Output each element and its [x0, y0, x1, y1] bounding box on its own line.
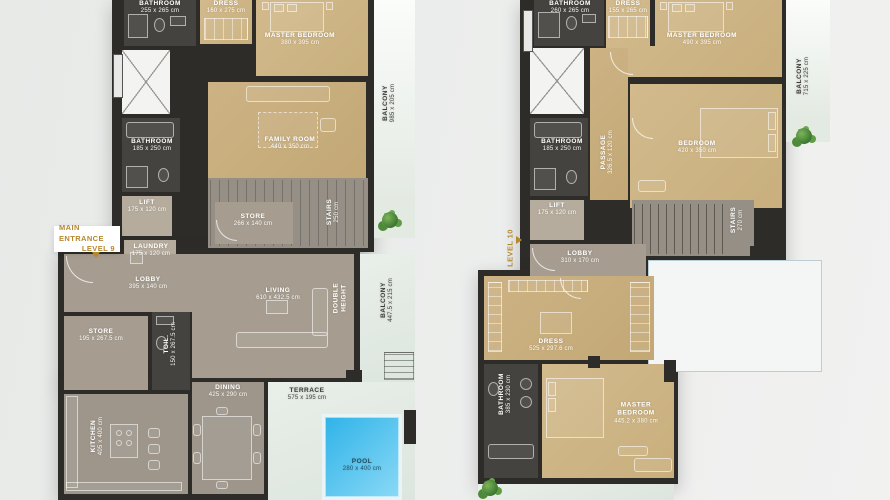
nightstand: [726, 2, 733, 10]
wardrobe: [608, 16, 648, 38]
room-living-l9: [192, 254, 354, 378]
chair: [193, 424, 201, 436]
label-lobby-l10: LOBBY310 x 170 cm: [561, 250, 599, 266]
label-dress-l9: DRESS160 x 275 cm: [207, 0, 245, 16]
pillow: [548, 398, 556, 412]
label-living-l9: LIVING610 x 432.5 cm: [256, 287, 300, 303]
label-lift-l9: LIFT175 x 120 cm: [128, 199, 166, 215]
bench: [618, 446, 648, 456]
sink: [520, 378, 532, 390]
chair: [253, 424, 261, 436]
lift-shaft-l10: [530, 48, 584, 114]
stove-burner: [126, 440, 132, 446]
pillow: [548, 382, 556, 396]
pillow: [287, 4, 297, 12]
pillow: [768, 134, 776, 152]
wall-stub: [346, 370, 362, 382]
label-bathroom-top-l10: BATHROOM260 x 265 cm: [549, 0, 591, 16]
armchair: [320, 118, 336, 132]
label-pool-l9: POOL280 x 400 cm: [343, 458, 381, 474]
entrance-arrow-icon: [92, 252, 100, 258]
sofa: [246, 86, 330, 102]
wardrobe: [630, 282, 650, 352]
sink: [170, 16, 186, 26]
dining-table: [202, 416, 252, 480]
dress-island: [540, 312, 572, 334]
label-dining-l9: DINING425 x 290 cm: [209, 384, 247, 400]
label-double-height-l9: DOUBLE HEIGHT: [333, 271, 350, 325]
label-balcony-lower-l9: BALCONY447.5 x 215 cm: [380, 278, 396, 322]
label-stairs-l10: STAIRS270 cm: [730, 207, 746, 233]
kitchen-counter: [66, 396, 78, 488]
label-bathroom-top-l9: BATHROOM255 x 265 cm: [139, 0, 181, 16]
wall-stub: [664, 360, 676, 382]
service-shaft-l10: [523, 10, 533, 52]
label-master-bedroom-top-l10: MASTER BEDROOM490 x 395 cm: [667, 32, 737, 48]
label-bathroom-mid-l9: BATHROOM185 x 250 cm: [131, 138, 173, 154]
label-balcony-upper-l9: BALCONY985 x 205 cm: [382, 84, 398, 122]
label-bathroom-mid-l10: BATHROOM185 x 250 cm: [541, 138, 583, 154]
wardrobe: [488, 282, 502, 352]
pillow: [672, 4, 682, 12]
stove-burner: [116, 440, 122, 446]
pillow: [768, 112, 776, 130]
label-dress-lower-l10: DRESS525 x 297.6 cm: [529, 338, 573, 354]
toilet-fixture: [154, 18, 165, 32]
toilet-fixture: [566, 16, 577, 30]
chair: [253, 452, 261, 464]
chair: [193, 452, 201, 464]
sofa: [312, 288, 328, 336]
wall-stub: [650, 0, 655, 46]
shower: [128, 14, 148, 38]
wardrobe: [204, 18, 248, 40]
kitchen-island: [110, 424, 138, 458]
plant: [382, 212, 398, 228]
label-terrace-l9: TERRACE575 x 195 cm: [288, 387, 326, 403]
stairs-treads-l10: [634, 204, 726, 254]
label-master-bedroom-l9: MASTER BEDROOM380 x 395 cm: [265, 32, 335, 48]
stove-burner: [116, 430, 122, 436]
nightstand: [262, 2, 269, 10]
wall-stub: [404, 410, 416, 444]
label-bathroom-lower-l10: BATHROOM385 x 230 cm: [498, 373, 514, 415]
bathtub: [126, 122, 174, 138]
main-entrance-label: MAIN ENTRANCE LEVEL 9: [54, 226, 120, 252]
entrance-arrow-icon: [516, 236, 522, 244]
label-lobby-l9: LOBBY395 x 140 cm: [129, 276, 167, 292]
chair: [216, 407, 228, 415]
pillow: [685, 4, 695, 12]
label-lift-l10: LIFT175 x 120 cm: [538, 202, 576, 218]
stool: [148, 460, 160, 470]
plant: [796, 128, 812, 144]
level10-entrance-label: LEVEL 10: [506, 229, 515, 267]
balcony-lower-l10: [478, 484, 674, 500]
label-balcony-upper-l10: BALCONY715 x 225 cm: [796, 57, 812, 95]
stove-burner: [126, 430, 132, 436]
pillow: [274, 4, 284, 12]
service-shaft-l9: [113, 54, 123, 98]
stool: [148, 444, 160, 454]
label-family-room-l9: FAMILY ROOM440 x 350 cm: [265, 136, 316, 152]
label-store-upper-l9: STORE266 x 140 cm: [234, 213, 272, 229]
label-store-lower-l9: STORE195 x 267.5 cm: [79, 328, 123, 344]
shower: [534, 168, 556, 190]
wall-stub: [750, 246, 784, 260]
bathtub: [534, 122, 582, 138]
desk: [634, 458, 672, 472]
label-master-bedroom-lower-l10: MASTER BEDROOM445.2 x 380 cm: [609, 402, 663, 427]
label-toilet-l9: TOIL.150 x 267.5 cm: [163, 322, 179, 366]
lift-shaft-l9: [122, 50, 170, 114]
open-void-l10: [648, 260, 822, 372]
nightstand: [326, 2, 333, 10]
chair: [216, 481, 228, 489]
label-laundry-l9: LAUNDRY175 x 120 cm: [132, 243, 170, 259]
wall-stub: [588, 356, 600, 368]
toilet-fixture: [158, 168, 169, 182]
floor-plan-canvas: BATHROOM255 x 265 cm DRESS160 x 275 cm M…: [0, 0, 890, 500]
plant: [482, 480, 498, 496]
kitchen-counter: [66, 482, 182, 491]
bathtub: [488, 444, 534, 459]
nightstand: [660, 2, 667, 10]
stool: [148, 428, 160, 438]
label-dress-top-l10: DRESS155 x 265 cm: [609, 0, 647, 16]
label-passage-l10: PASSAGE326.5 x 120 cm: [600, 130, 616, 174]
label-bedroom-l10: BEDROOM420 x 350 cm: [678, 140, 716, 156]
label-kitchen-l9: KITCHEN405 x 400 cm: [90, 417, 106, 455]
label-stairs-l9: STAIRS250 cm: [326, 199, 342, 225]
toilet-fixture: [566, 170, 577, 184]
sofa: [638, 180, 666, 192]
balcony-planter: [384, 352, 414, 380]
shower: [126, 166, 148, 188]
sink: [520, 396, 532, 408]
